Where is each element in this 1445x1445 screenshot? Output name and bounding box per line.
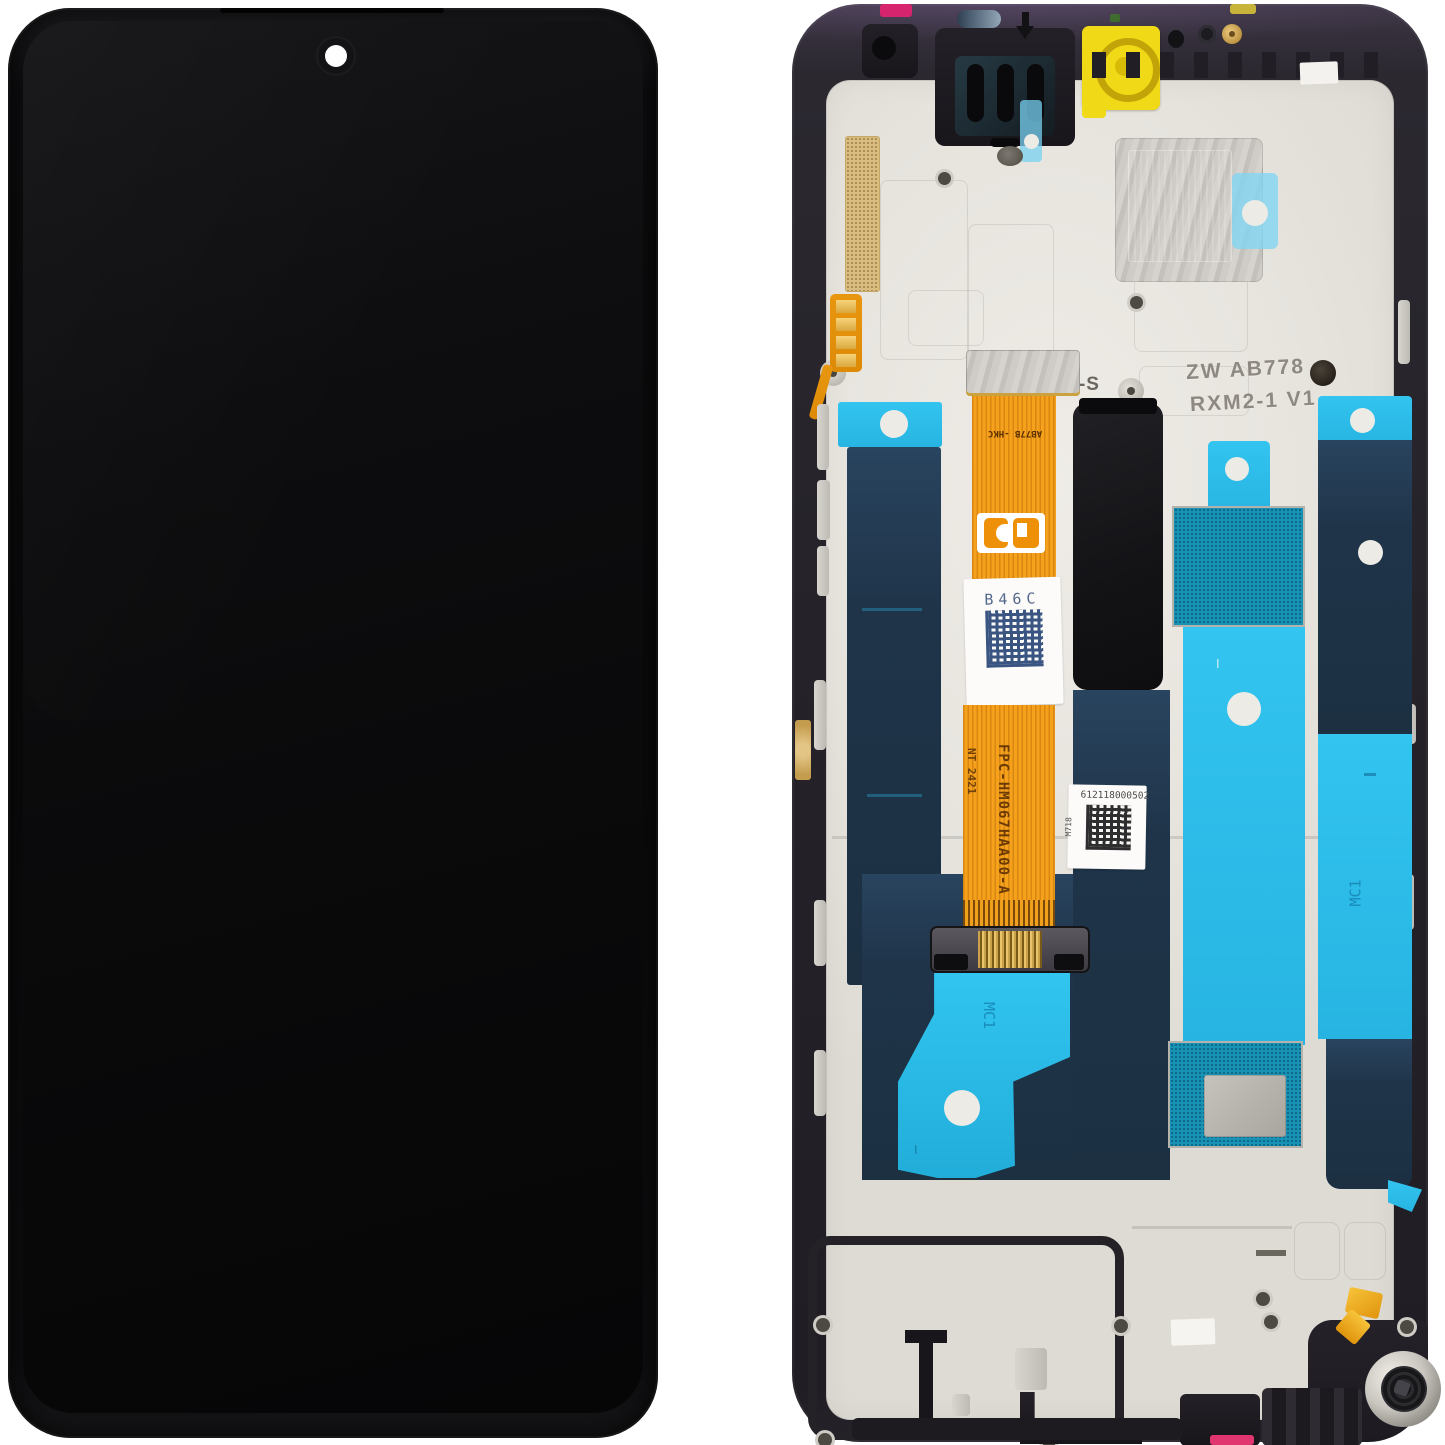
white-sticker-bottom	[1171, 1318, 1216, 1346]
frame-slot	[817, 546, 829, 596]
flex-emi-connector	[966, 350, 1080, 396]
graphite-pad-connector	[1079, 398, 1157, 414]
serial-label: 612118000502 M718	[1067, 784, 1146, 869]
vo-marking	[1198, 25, 1216, 43]
arrow-marking-shaft	[1022, 12, 1029, 26]
flex-contact-pad	[836, 336, 856, 349]
silver-bracket	[952, 1394, 970, 1416]
camera-bracket	[862, 24, 918, 78]
screw-hole	[816, 1318, 830, 1332]
bottom-ribbed-piece	[1262, 1388, 1362, 1445]
adhesive-hole	[880, 410, 908, 438]
etched-dash	[1256, 1250, 1286, 1256]
adhesive-navy-right	[1318, 440, 1412, 734]
flex-contact-pad	[836, 354, 856, 367]
adhesive-dash	[867, 794, 922, 797]
frame-slot	[817, 480, 830, 540]
screen-sheen	[23, 21, 643, 721]
sensor-pill	[957, 10, 1001, 28]
gold-screw-hole	[1229, 31, 1235, 37]
screw-hole	[1264, 1315, 1278, 1329]
phone-back-assembly: ZW AB778 RXM2-1 V1 07.1-S AB77B -HKC	[792, 4, 1428, 1442]
sensor-hole	[1168, 30, 1184, 48]
yellow-edge-sticker	[1230, 4, 1256, 14]
bracket-glyph-left	[984, 518, 1008, 548]
i-cutout-stem	[919, 1343, 933, 1423]
flex-top-code: AB77B -HKC	[980, 428, 1050, 438]
adhesive-hole	[1227, 692, 1261, 726]
btb-connector	[930, 926, 1090, 973]
frame-slot	[814, 900, 826, 966]
blue-tape-tab	[1232, 173, 1278, 249]
flex-date-code: NT 2421	[965, 748, 978, 828]
adhesive-dash	[1364, 773, 1376, 776]
main-flex-upper	[972, 396, 1056, 518]
flex-hole	[944, 1090, 980, 1126]
earpiece-slot	[967, 64, 984, 122]
earpiece-slit	[220, 8, 444, 13]
blue-tape-small	[1020, 100, 1042, 162]
bottom-strip	[852, 1418, 1182, 1440]
side-flex	[830, 294, 862, 372]
magenta-edge-sticker	[880, 4, 912, 17]
pink-edge-sticker	[1210, 1435, 1254, 1445]
earpiece-housing	[935, 28, 1075, 146]
graphite-pad	[1073, 403, 1163, 690]
camera-bracket-hole	[872, 36, 896, 60]
adhesive-cyan-mid: I	[1183, 627, 1305, 1045]
frame-teeth	[1092, 52, 1388, 78]
adhesive-hole	[1350, 408, 1375, 433]
flex-label-qr	[985, 609, 1043, 667]
screw-hole	[1256, 1292, 1270, 1306]
adhesive-navy-right-lower	[1326, 1039, 1412, 1189]
camera-sticker-tab	[1082, 106, 1106, 118]
dark-rivet	[1310, 360, 1336, 386]
frame-slot	[814, 680, 826, 750]
flex-batch-code: B46C	[964, 589, 1061, 610]
plate-seam	[1132, 1226, 1292, 1229]
screw-hole	[1400, 1320, 1414, 1334]
adhesive-cyan-right: MC1	[1318, 734, 1412, 1039]
adhesive-hole	[1225, 457, 1249, 481]
etched-rect	[1344, 1222, 1386, 1280]
phone-front-assembly	[8, 8, 658, 1438]
edge-contact-pad	[795, 720, 811, 780]
flex-contact-pad	[836, 318, 856, 331]
vibration-motor	[1365, 1351, 1441, 1427]
serial-number: 612118000502	[1080, 790, 1146, 802]
adhesive-hole	[1358, 540, 1383, 565]
flex-part-number: FPC-HM067HAA00-A	[995, 744, 1011, 924]
punch-hole-camera	[325, 45, 347, 67]
tape-hole	[1242, 200, 1268, 226]
bracket-glyph-cut	[996, 524, 1008, 542]
frame-slot	[1398, 300, 1410, 364]
i-cutout-top	[905, 1330, 947, 1343]
earpiece-slot	[997, 64, 1014, 122]
white-sticker-top	[1300, 61, 1339, 84]
flex-bracket-graphic	[977, 513, 1045, 553]
right-adhesive-code: MC1	[1347, 879, 1365, 906]
frame-slot	[817, 404, 829, 470]
center-flex-code: MC1	[980, 1002, 998, 1082]
connector-gold-fingers	[978, 931, 1042, 968]
silver-bracket	[1015, 1348, 1047, 1390]
adhesive-tick-mid: I	[1216, 656, 1220, 671]
etched-rect	[908, 290, 984, 346]
connector-corner	[1054, 954, 1084, 970]
tape-hole	[1024, 134, 1039, 149]
connector-corner	[934, 954, 968, 970]
flex-tick: I	[914, 1142, 918, 1157]
flat-rivet	[997, 146, 1023, 166]
screw-hole	[1114, 1319, 1128, 1333]
screw-hole	[818, 1433, 832, 1445]
frame-slot	[814, 1050, 826, 1116]
product-photo-lcd-assembly: ZW AB778 RXM2-1 V1 07.1-S AB77B -HKC	[0, 0, 1445, 1445]
flex-label: B46C	[963, 577, 1063, 706]
mesh-patch-upper	[1172, 506, 1305, 627]
adhesive-dash	[862, 608, 922, 611]
gold-mesh-grille	[845, 136, 880, 292]
bracket-glyph-notch	[1017, 523, 1027, 537]
green-dot	[1110, 14, 1120, 22]
screw-hole	[938, 172, 951, 185]
blue-tape-shield	[1128, 150, 1232, 262]
arrow-marking-head	[1016, 26, 1034, 39]
silver-patch	[1204, 1075, 1286, 1137]
flex-contact-pad	[836, 300, 856, 313]
bracket-glyph-right	[1013, 518, 1039, 548]
etched-rect	[1294, 1222, 1340, 1280]
serial-qr	[1086, 805, 1132, 851]
serial-side-code: M718	[1064, 817, 1073, 836]
screw-hole	[1130, 296, 1143, 309]
gold-screw	[1222, 24, 1242, 44]
